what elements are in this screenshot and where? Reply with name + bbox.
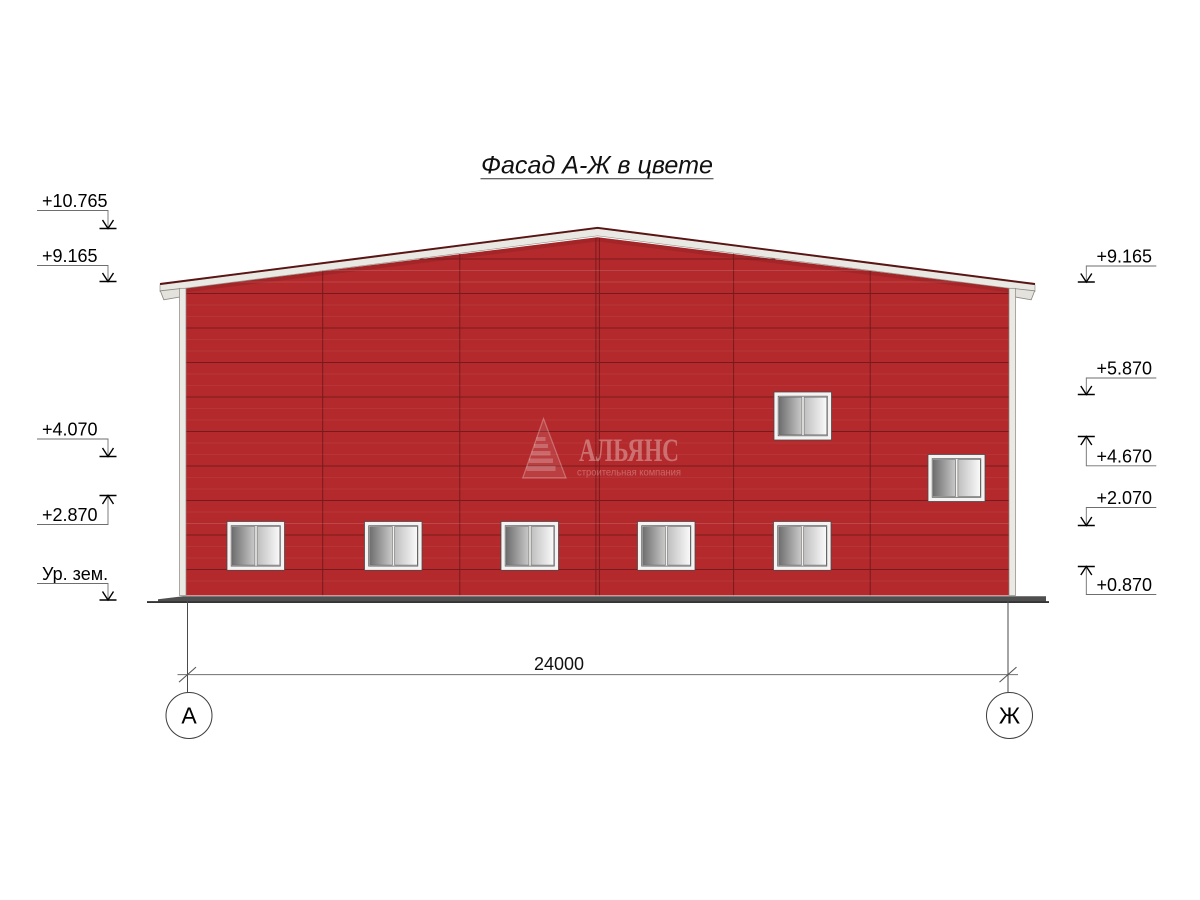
svg-text:24000: 24000	[534, 654, 584, 674]
svg-text:+9.165: +9.165	[1097, 247, 1153, 267]
svg-text:А: А	[181, 703, 197, 729]
svg-text:+2.870: +2.870	[42, 505, 98, 525]
svg-text:+0.870: +0.870	[1097, 575, 1153, 595]
svg-text:+5.870: +5.870	[1097, 359, 1153, 379]
svg-text:строительная компания: строительная компания	[577, 467, 681, 479]
svg-text:АЛЬЯНС: АЛЬЯНС	[579, 433, 679, 469]
svg-text:Фасад А-Ж в цвете: Фасад А-Ж в цвете	[481, 152, 713, 180]
svg-text:Ур. зем.: Ур. зем.	[42, 564, 108, 584]
svg-text:+4.670: +4.670	[1097, 446, 1153, 466]
svg-text:+10.765: +10.765	[42, 191, 108, 211]
svg-text:+4.070: +4.070	[42, 420, 98, 440]
svg-text:+2.070: +2.070	[1097, 488, 1153, 508]
svg-text:+9.165: +9.165	[42, 246, 98, 266]
svg-text:Ж: Ж	[999, 703, 1020, 729]
